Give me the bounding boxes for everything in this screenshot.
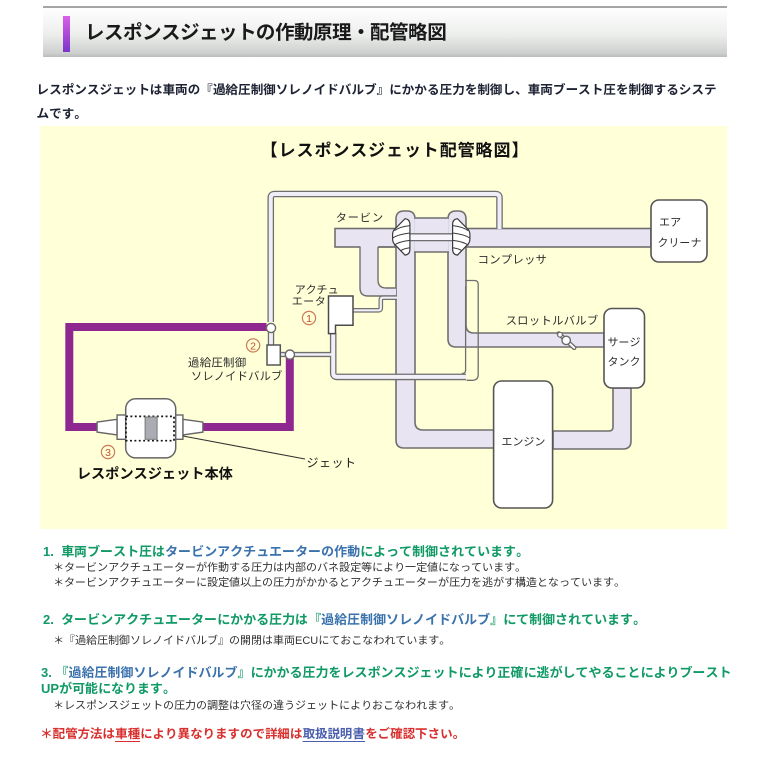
svg-text:ジェット: ジェット: [307, 456, 357, 470]
svg-text:タンク: タンク: [608, 357, 641, 369]
svg-text:【レスポンスジェット配管略図】: 【レスポンスジェット配管略図】: [261, 140, 530, 160]
svg-text:レスポンスジェット本体: レスポンスジェット本体: [77, 465, 234, 482]
svg-text:1: 1: [306, 313, 312, 325]
svg-text:スロットルバルブ: スロットルバルブ: [506, 315, 599, 328]
svg-text:エンジン: エンジン: [501, 437, 545, 449]
svg-text:ソレノイドバルブ: ソレノイドバルブ: [191, 370, 283, 383]
svg-text:タービン: タービン: [336, 211, 384, 224]
svg-text:エア: エア: [659, 217, 681, 229]
svg-text:エータ: エータ: [292, 296, 327, 308]
svg-text:2: 2: [250, 340, 256, 352]
svg-text:コンプレッサ: コンプレッサ: [478, 253, 548, 266]
svg-text:クリーナ: クリーナ: [657, 238, 701, 250]
svg-text:3: 3: [105, 447, 111, 459]
svg-text:アクチュ: アクチュ: [295, 284, 339, 296]
svg-text:過給圧制御: 過給圧制御: [188, 356, 246, 370]
svg-text:サージ: サージ: [608, 337, 641, 349]
